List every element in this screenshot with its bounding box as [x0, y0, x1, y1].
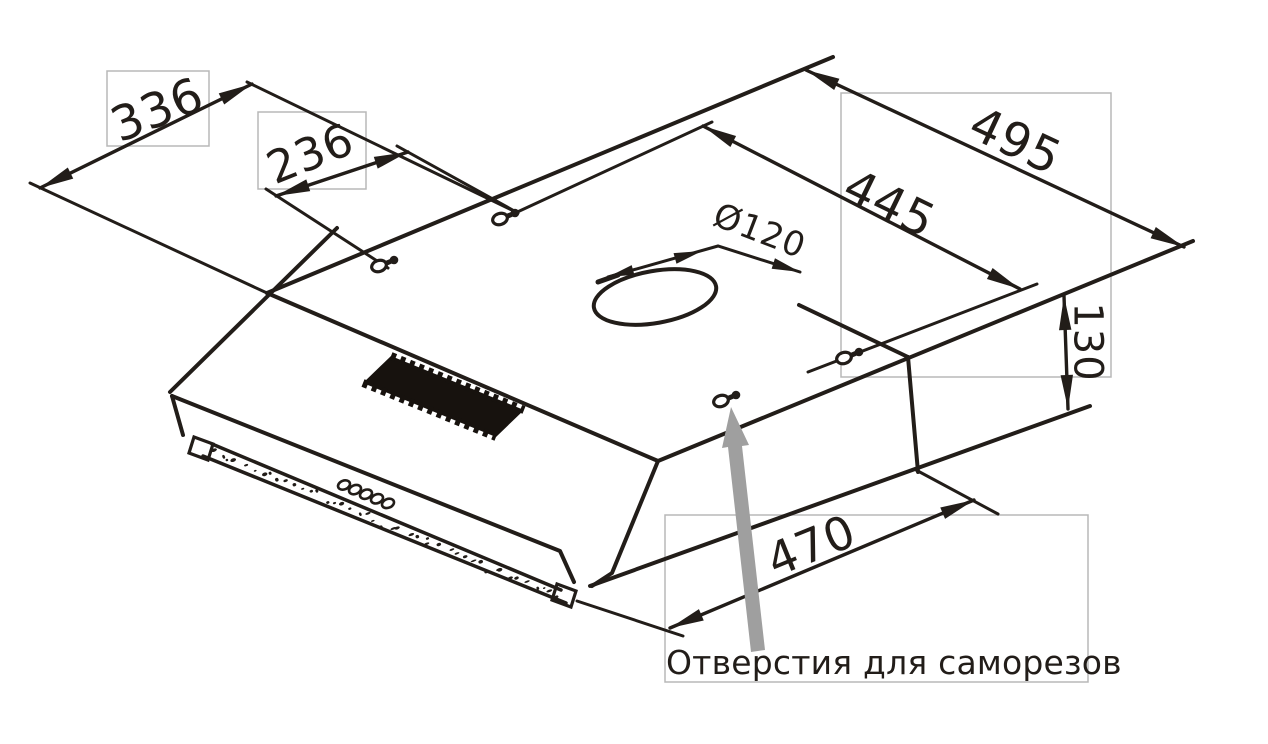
rail-upper-line [212, 444, 561, 590]
top-right-side-edge [799, 305, 908, 357]
left-foot-bracket [189, 437, 213, 460]
keyhole-slot [491, 209, 519, 227]
right-foot-bracket [552, 584, 576, 607]
left-bevel-edge [170, 228, 337, 392]
dim-label-470: 470 [759, 503, 863, 587]
front-top-edge [172, 396, 574, 582]
rail-perforation-speckles [210, 448, 558, 599]
label-boxes [107, 71, 1111, 682]
dim-label-130: 130 [1065, 302, 1111, 381]
pointer-arrow [722, 407, 765, 652]
bottom-rail [189, 437, 576, 607]
dim-label-236: 236 [259, 112, 361, 194]
keyhole-slot [712, 391, 740, 409]
dim-label-120: Ø120 [708, 195, 812, 267]
dimension-labels: 336 236 495 445 Ø120 130 470 Отверстия д… [103, 67, 1122, 682]
rear-right-vertical-edge [908, 357, 918, 472]
dim-label-336: 336 [103, 67, 212, 154]
top-plate-rear-left-edge [267, 57, 833, 293]
keyhole-slot [835, 348, 863, 366]
extension-lines [30, 82, 1037, 636]
dim-label-495: 495 [961, 96, 1070, 187]
screw-holes-note: Отверстия для саморезов [666, 643, 1122, 682]
right-bevel-edge [592, 461, 658, 586]
cooker-hood-dimension-drawing: 336 236 495 445 Ø120 130 470 Отверстия д… [0, 0, 1268, 744]
duct-hole [589, 261, 720, 334]
dim-label-445: 445 [835, 158, 945, 250]
